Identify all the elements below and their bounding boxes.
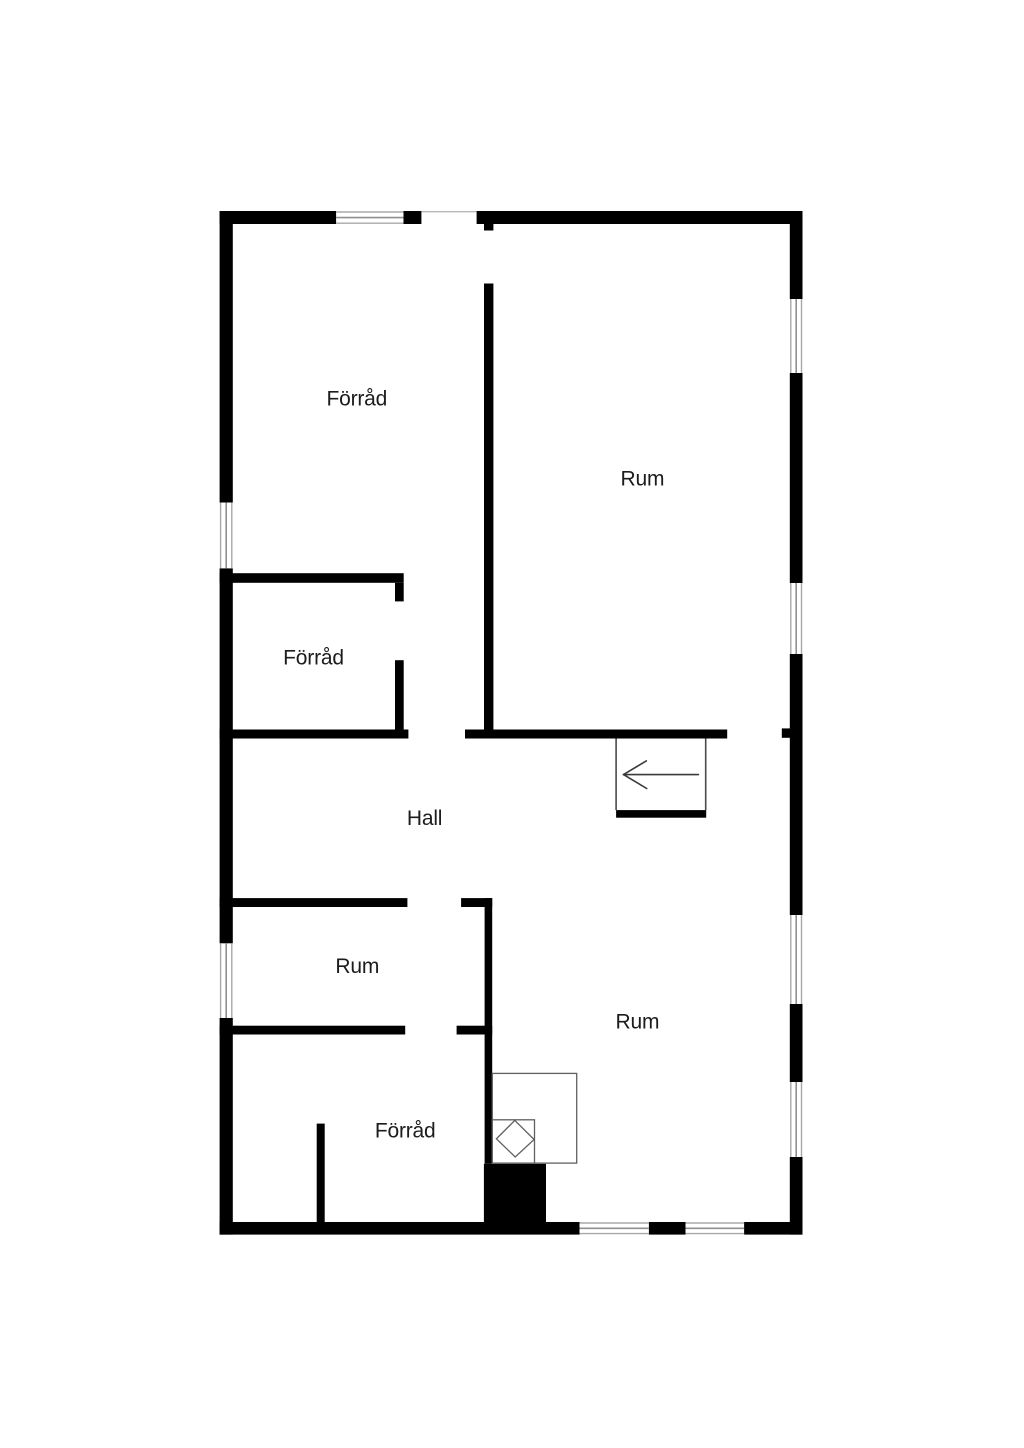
svg-text:Förråd: Förråd: [375, 1120, 436, 1143]
svg-text:Hall: Hall: [407, 807, 442, 830]
svg-text:Rum: Rum: [621, 468, 665, 491]
svg-text:Rum: Rum: [616, 1010, 660, 1033]
svg-text:Rum: Rum: [335, 955, 379, 978]
svg-text:Förråd: Förråd: [326, 388, 387, 411]
svg-text:Förråd: Förråd: [283, 646, 344, 669]
